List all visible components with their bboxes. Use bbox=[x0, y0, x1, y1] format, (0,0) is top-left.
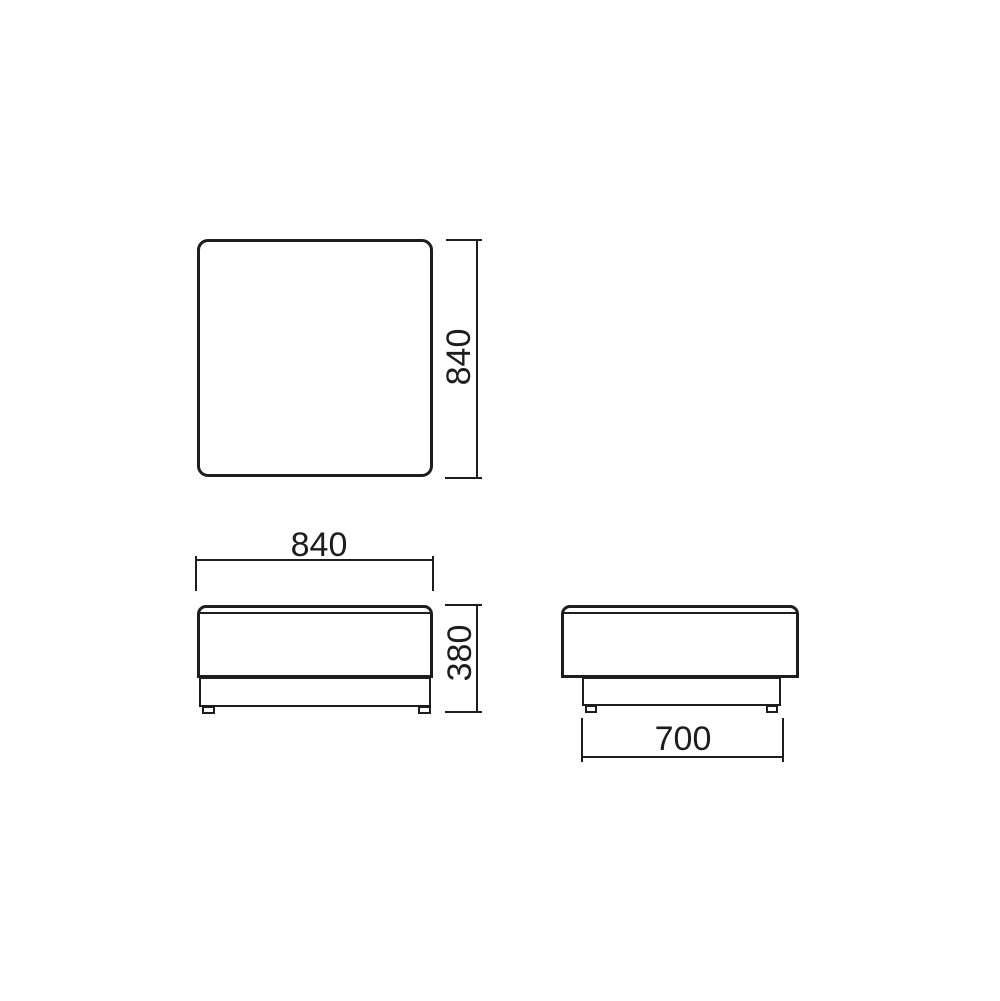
front-width-dimension-line bbox=[196, 559, 434, 561]
front-view-seat bbox=[197, 605, 433, 678]
front-view-foot-left bbox=[202, 706, 215, 714]
front-height-dimension-tick-top bbox=[445, 604, 482, 606]
side-view-foot-left bbox=[585, 705, 597, 713]
top-view-outline bbox=[197, 239, 433, 477]
technical-drawing-canvas: 840 840 380 700 bbox=[0, 0, 1000, 1001]
dimension-label-side-depth: 700 bbox=[655, 722, 712, 756]
side-view-seat bbox=[561, 605, 799, 678]
top-view-dimension-tick-bottom bbox=[445, 477, 482, 479]
front-view-base bbox=[199, 677, 431, 707]
front-width-dimension-tick-left bbox=[195, 556, 197, 591]
front-width-dimension-tick-right bbox=[432, 556, 434, 591]
side-view-base bbox=[582, 677, 781, 706]
dimension-label-front-width: 840 bbox=[291, 528, 348, 562]
front-view-foot-right bbox=[418, 706, 431, 714]
dimension-label-front-height: 380 bbox=[443, 625, 477, 682]
dimension-label-plan-depth: 840 bbox=[442, 329, 476, 386]
side-view-seam-line bbox=[563, 612, 797, 614]
front-view-seam-line bbox=[199, 612, 431, 614]
side-view-foot-right bbox=[766, 705, 778, 713]
front-height-dimension-tick-bottom bbox=[445, 711, 482, 713]
top-view-dimension-tick-top bbox=[446, 239, 482, 241]
